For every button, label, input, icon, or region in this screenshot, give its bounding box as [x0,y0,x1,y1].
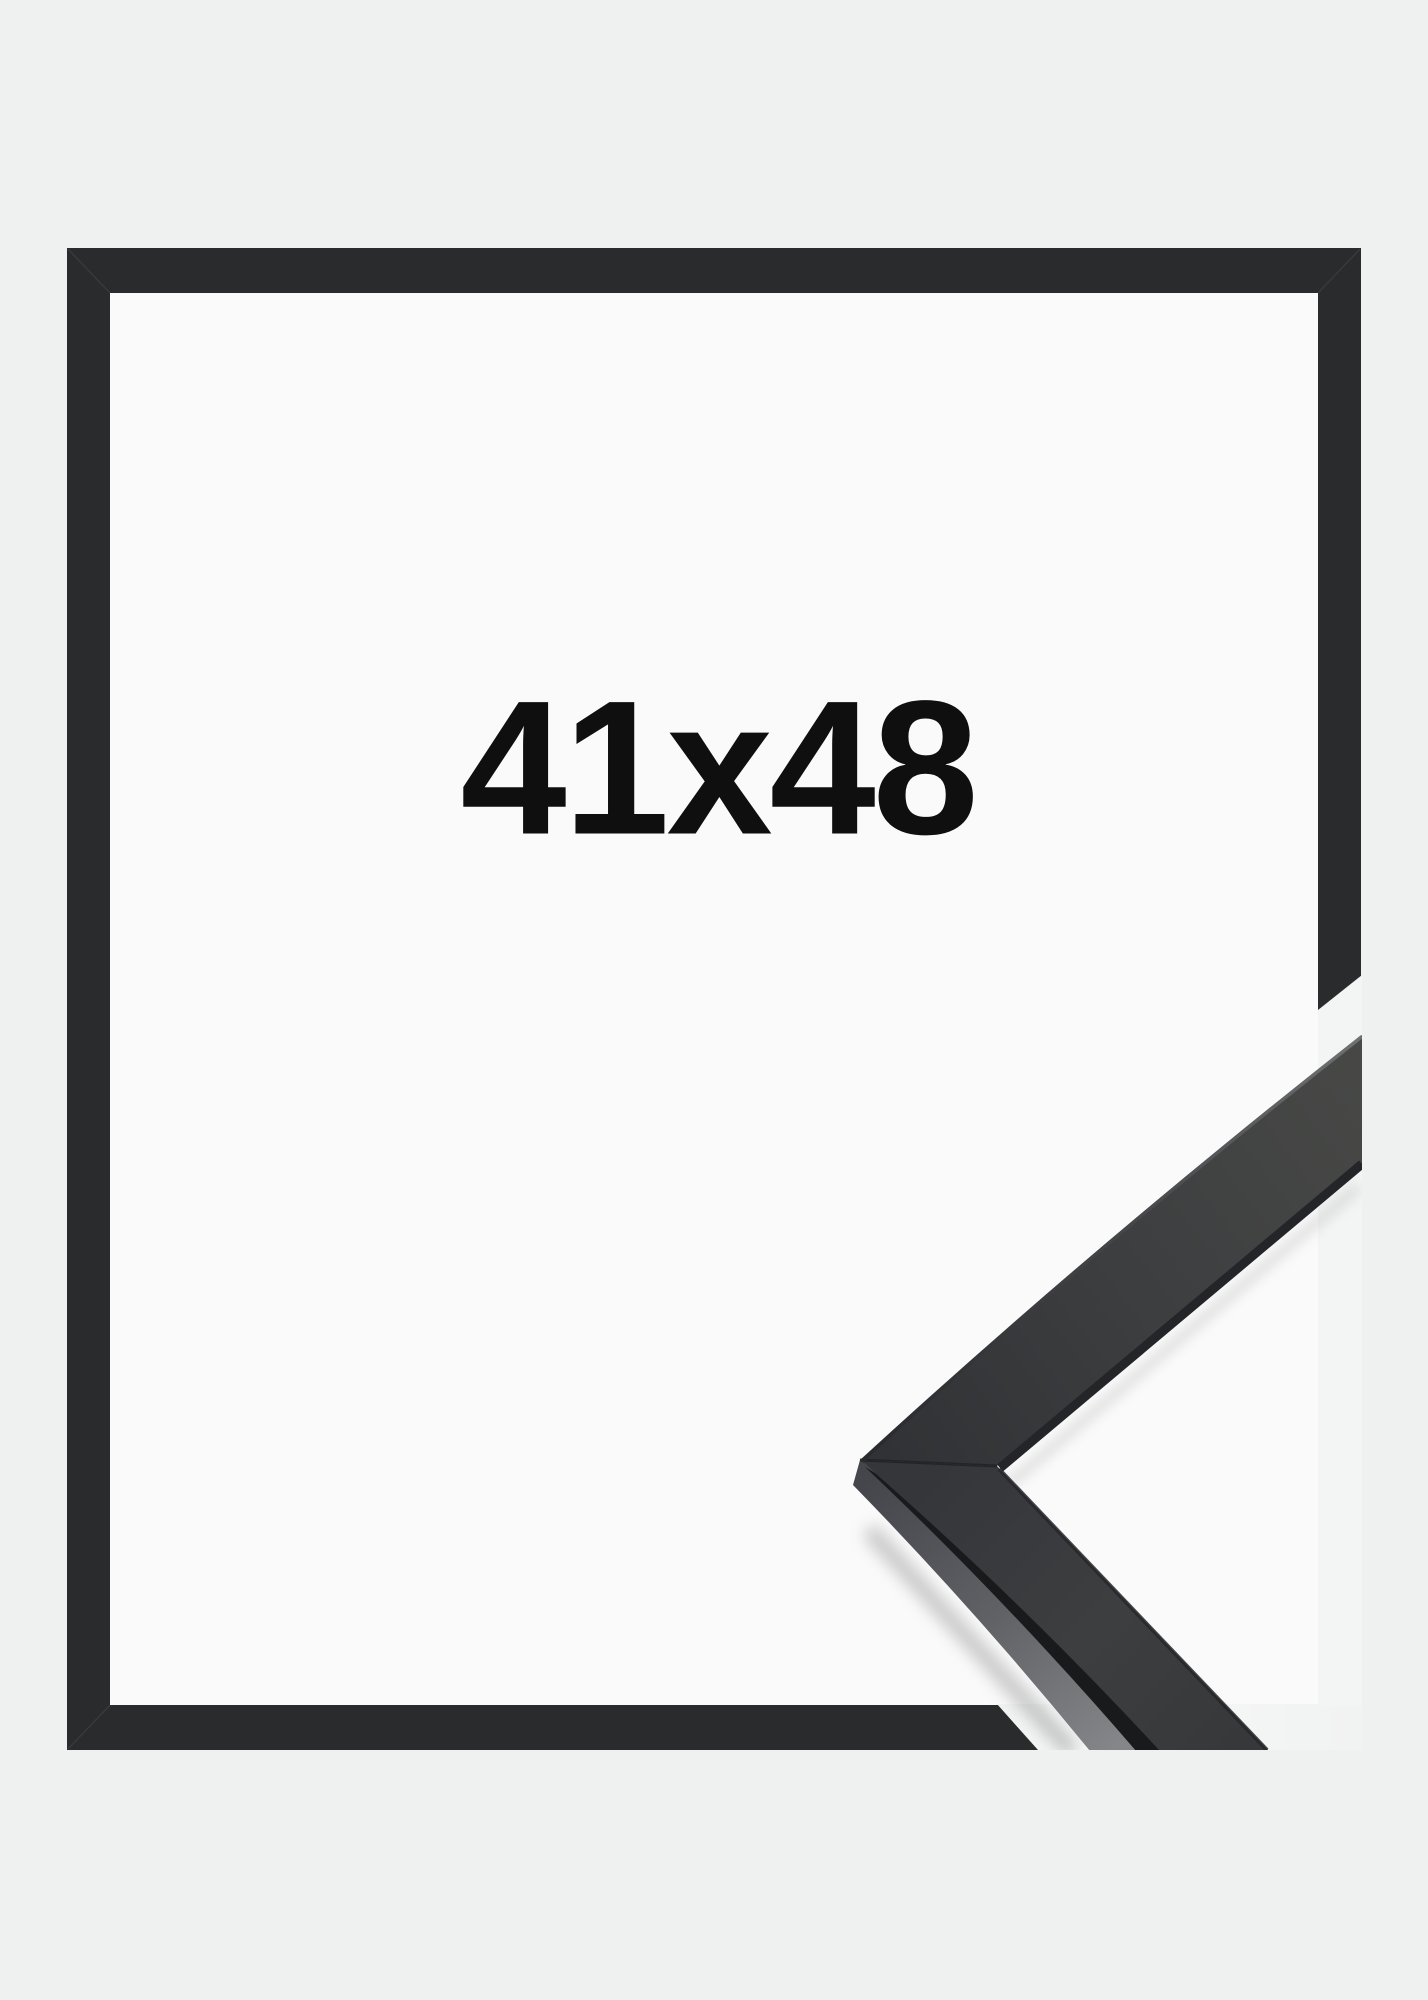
svg-text:41x48: 41x48 [460,662,975,875]
